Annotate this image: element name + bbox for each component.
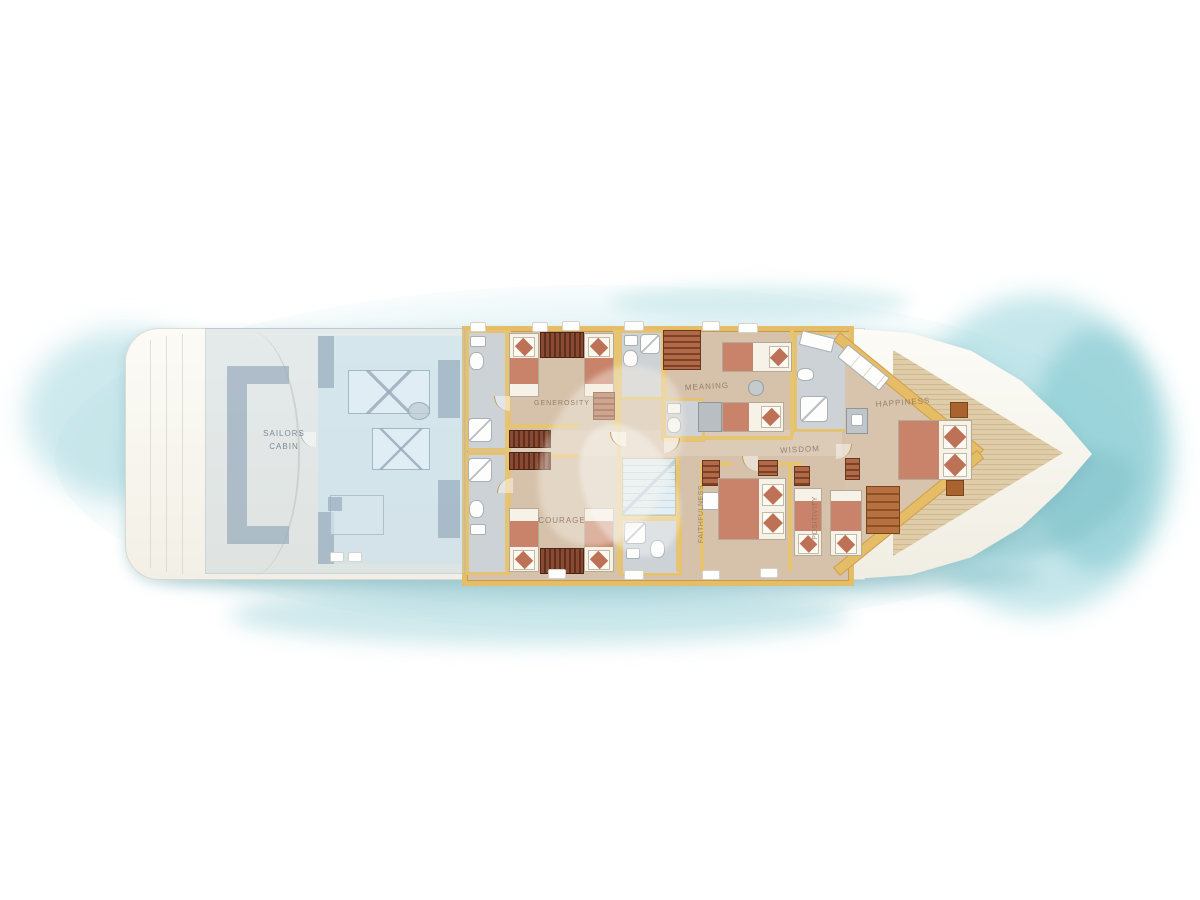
- sink: [624, 335, 638, 346]
- shower: [640, 334, 660, 354]
- cabinet: [845, 458, 860, 480]
- pillow: [513, 337, 535, 357]
- pillow: [588, 550, 610, 570]
- pillow: [943, 453, 967, 477]
- wardrobe: [866, 486, 900, 534]
- room-label-positivity: POSITIVITY: [812, 473, 824, 563]
- sink: [470, 524, 486, 535]
- desk: [698, 402, 722, 432]
- window: [470, 322, 486, 332]
- pillow: [943, 425, 967, 449]
- pillow: [761, 406, 781, 428]
- sailors-cabin-line2: CABIN: [269, 442, 298, 451]
- toilet: [469, 352, 484, 370]
- stern-stripe: [166, 336, 167, 572]
- nightstand: [946, 480, 964, 496]
- pillow: [835, 534, 857, 554]
- hatch: [348, 552, 362, 562]
- blanket: [719, 479, 759, 539]
- blanket: [510, 358, 538, 384]
- blanket: [723, 403, 749, 431]
- wall-segment: [788, 462, 792, 572]
- bed: [509, 333, 539, 397]
- blanket: [831, 501, 861, 531]
- wall-segment: [438, 360, 460, 418]
- sailors-cabin-line1: SAILORS: [263, 429, 305, 438]
- faucet: [851, 414, 863, 426]
- wall-segment: [247, 526, 289, 544]
- pillow: [762, 512, 784, 534]
- window: [624, 321, 644, 331]
- floor-plan: SAILORS CABIN GENEROSITY COURAGE MEANING…: [0, 0, 1200, 900]
- dresser: [540, 332, 584, 358]
- pillow: [588, 337, 610, 357]
- window: [702, 321, 720, 331]
- blanket: [899, 421, 939, 479]
- double-bed: [718, 478, 786, 540]
- shower: [468, 458, 492, 482]
- tv-cabinet: [794, 466, 810, 486]
- nightstand: [950, 402, 968, 418]
- wall-segment: [438, 480, 460, 538]
- crew-bunk: [372, 428, 430, 470]
- window: [702, 570, 720, 580]
- blanket: [723, 343, 753, 371]
- room-label-courage: COURAGE: [507, 516, 617, 525]
- window: [562, 321, 580, 331]
- pillow: [762, 484, 784, 506]
- pillow: [769, 346, 789, 368]
- hatch: [330, 552, 344, 562]
- room-label-faithfulness: FAITHFULNESS: [698, 469, 710, 559]
- toilet: [469, 500, 484, 518]
- stern-stripe: [182, 334, 183, 574]
- window: [738, 323, 758, 333]
- sink: [797, 368, 814, 381]
- bed: [722, 342, 792, 372]
- pillow: [513, 550, 535, 570]
- stern-stripe: [150, 340, 151, 568]
- wall-segment: [227, 366, 247, 544]
- table-round: [408, 402, 430, 420]
- bed: [830, 490, 862, 556]
- window: [624, 570, 644, 580]
- room-label-generosity: GENEROSITY: [507, 400, 617, 407]
- vanity: [846, 408, 868, 434]
- crew-furniture: [328, 497, 342, 511]
- window: [532, 322, 548, 332]
- shower: [800, 396, 828, 422]
- sink: [470, 336, 486, 347]
- shower: [468, 418, 492, 442]
- wardrobe: [663, 330, 701, 370]
- window: [548, 569, 566, 579]
- bed: [722, 402, 784, 432]
- tv-cabinet: [758, 460, 778, 476]
- wall-segment: [318, 336, 334, 388]
- double-bed: [898, 420, 972, 480]
- window: [760, 568, 778, 578]
- room-label-sailors-cabin: SAILORS CABIN: [238, 428, 330, 454]
- wall-segment: [247, 366, 289, 384]
